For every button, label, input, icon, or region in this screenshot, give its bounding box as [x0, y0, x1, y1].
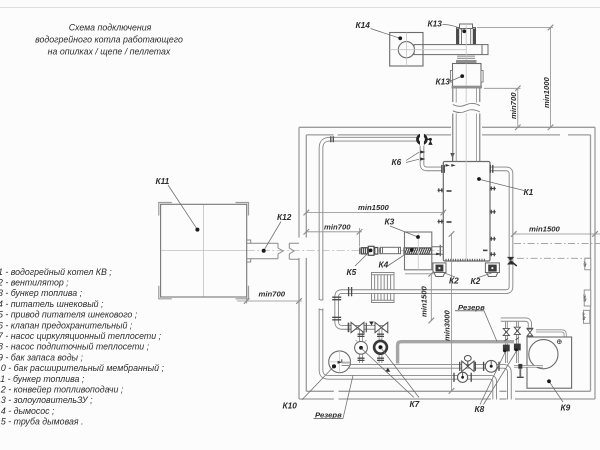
svg-text:ЩУП: ЩУП [582, 312, 586, 320]
svg-text:min700: min700 [509, 92, 518, 119]
svg-text:11 - бункер топлива ;: 11 - бункер топлива ; [0, 374, 85, 384]
svg-text:14 - дымосос ;: 14 - дымосос ; [0, 406, 55, 416]
svg-text:min1000: min1000 [542, 77, 551, 108]
svg-text:К14: К14 [356, 20, 371, 30]
svg-text:К10: К10 [283, 401, 298, 411]
svg-text:10 - бак расширительный мемб: 10 - бак расширительный мембранный ; [0, 363, 164, 373]
svg-text:min1500: min1500 [420, 286, 429, 317]
svg-text:8 - насос подпиточный теплос: 8 - насос подпиточный теплосети ; [0, 342, 150, 352]
svg-text:К7: К7 [410, 399, 420, 409]
svg-text:К12: К12 [277, 212, 292, 222]
svg-text:К2: К2 [449, 276, 459, 286]
svg-text:12 - конвейер топливоподачи: 12 - конвейер топливоподачи ; [0, 385, 124, 395]
svg-text:К11: К11 [156, 176, 170, 186]
svg-text:водогрейного котла работающего: водогрейного котла работающего [35, 35, 183, 45]
svg-text:15 - труба дымовая .: 15 - труба дымовая . [0, 417, 83, 427]
svg-text:К9: К9 [561, 403, 571, 413]
svg-text:7 - насос циркуляционный теп: 7 - насос циркуляционный теплосети ; [0, 331, 162, 341]
svg-text:Схема подключения: Схема подключения [69, 23, 152, 33]
svg-text:9 - бак запаса воды ;: 9 - бак запаса воды ; [0, 352, 83, 362]
svg-text:3 - бункер топлива ;: 3 - бункер топлива ; [0, 288, 83, 298]
svg-text:6 - клапан предохранительный: 6 - клапан предохранительный ; [0, 320, 133, 330]
svg-text:К5: К5 [347, 267, 357, 277]
svg-text:К4: К4 [379, 259, 389, 269]
svg-text:К6: К6 [392, 157, 402, 167]
svg-text:min700: min700 [259, 290, 286, 299]
svg-text:К8: К8 [475, 404, 485, 414]
svg-text:5 - привод питателя шнековог: 5 - привод питателя шнекового ; [0, 310, 138, 320]
svg-text:ЩВС: ЩВС [583, 294, 587, 302]
svg-text:К1: К1 [524, 187, 534, 197]
svg-text:на опилках / щепе / пеллетах: на опилках / щепе / пеллетах [48, 47, 171, 57]
svg-text:min1500: min1500 [529, 225, 560, 234]
svg-text:К13: К13 [436, 77, 451, 87]
svg-text:min3000: min3000 [443, 310, 452, 341]
svg-text:4 - питатель шнековый ;: 4 - питатель шнековый ; [0, 299, 104, 309]
svg-text:min700: min700 [324, 223, 351, 232]
svg-text:min1500: min1500 [358, 203, 389, 212]
svg-text:13 - золоуловительЗУ ;: 13 - золоуловительЗУ ; [0, 395, 93, 405]
svg-text:К3: К3 [385, 217, 395, 227]
svg-text:2 - вентилятор ;: 2 - вентилятор ; [0, 278, 69, 288]
svg-text:К13: К13 [428, 19, 443, 29]
svg-text:К2: К2 [471, 276, 481, 286]
svg-text:1 - водогрейный котел КВ ;: 1 - водогрейный котел КВ ; [0, 267, 112, 277]
